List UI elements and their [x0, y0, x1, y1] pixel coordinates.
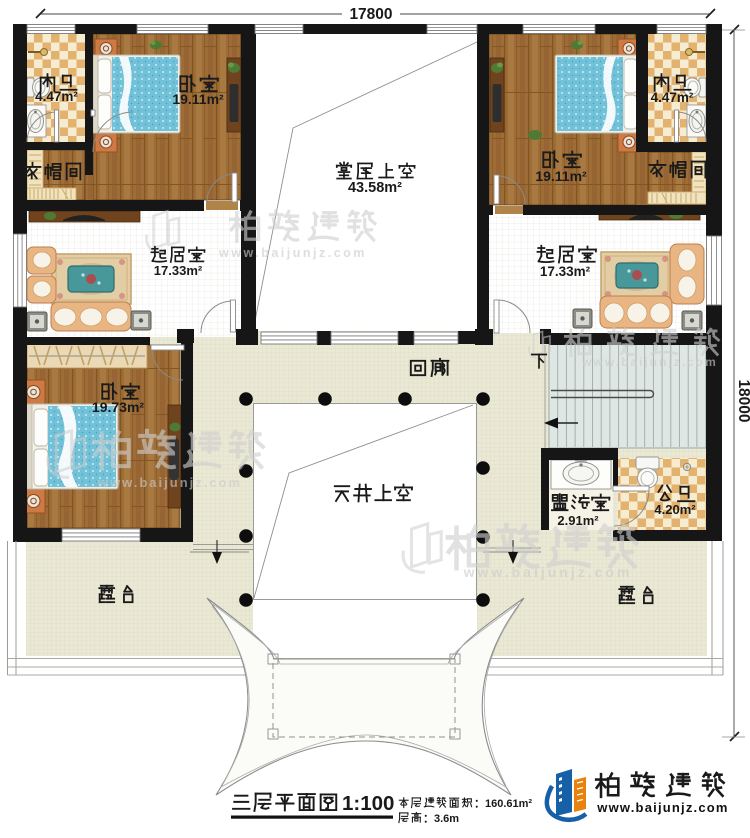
svg-text:www.baijunjz.com: www.baijunjz.com [581, 355, 718, 369]
svg-text:www.baijunjz.com: www.baijunjz.com [463, 564, 633, 580]
svg-text:www.baijunjz.com: www.baijunjz.com [218, 246, 367, 260]
svg-text:17.33m²: 17.33m² [540, 264, 591, 279]
svg-text:www.baijunjz.com: www.baijunjz.com [97, 475, 242, 490]
svg-text:4.20m²: 4.20m² [654, 502, 696, 517]
svg-text:43.58m²: 43.58m² [348, 180, 402, 196]
svg-text:4.47m²: 4.47m² [651, 90, 694, 105]
svg-text:4.47m²: 4.47m² [35, 89, 78, 104]
svg-text:19.11m²: 19.11m² [535, 168, 587, 184]
svg-text:17800: 17800 [349, 6, 392, 23]
svg-text:19.11m²: 19.11m² [172, 91, 224, 107]
svg-text:1:100: 1:100 [342, 792, 394, 815]
svg-text:19.73m²: 19.73m² [92, 399, 144, 415]
svg-text:17.33m²: 17.33m² [154, 263, 203, 278]
svg-text:：3.6m: ：3.6m [423, 813, 459, 825]
svg-text:18000: 18000 [735, 379, 750, 422]
svg-text:：160.61m²: ：160.61m² [474, 798, 532, 810]
svg-text:www.baijunjz.com: www.baijunjz.com [596, 800, 728, 815]
svg-text:2.91m²: 2.91m² [557, 513, 599, 528]
